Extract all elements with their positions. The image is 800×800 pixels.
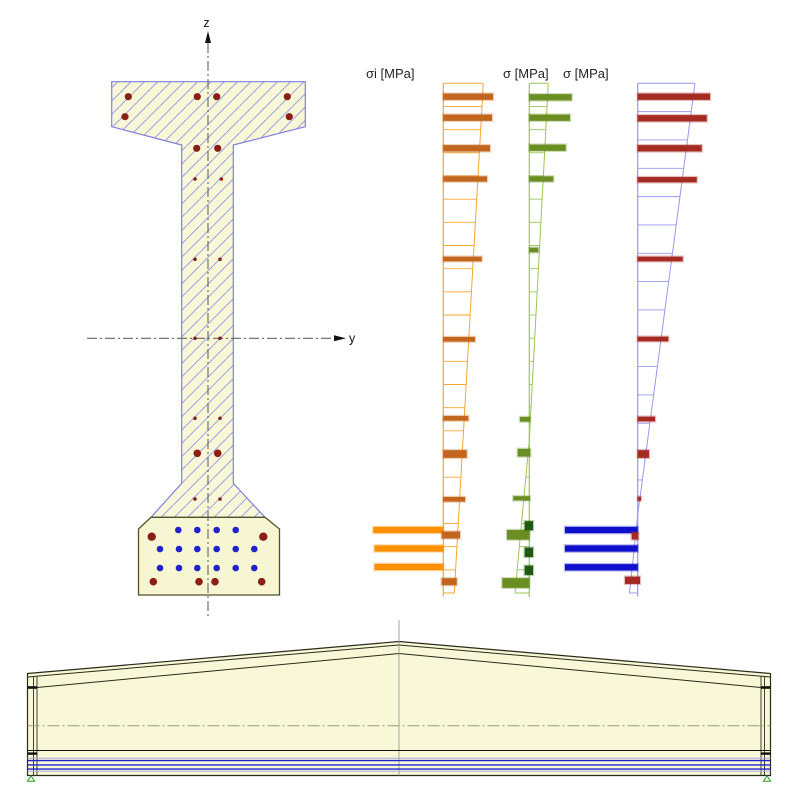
stress-bar bbox=[632, 533, 639, 540]
stress-bar bbox=[638, 94, 710, 100]
stress-bar bbox=[529, 176, 553, 181]
stress-bar bbox=[638, 497, 641, 501]
stress-bar bbox=[565, 545, 638, 551]
support-icon bbox=[763, 776, 770, 782]
stress-bar bbox=[443, 337, 475, 342]
stress-bar bbox=[443, 94, 493, 100]
y-axis-label: y bbox=[349, 332, 356, 346]
stress-bar bbox=[520, 417, 530, 422]
stress-bar bbox=[525, 548, 533, 557]
stress-bar bbox=[518, 449, 531, 457]
stress-bar bbox=[375, 545, 444, 551]
beam-elevation-view bbox=[27, 620, 770, 781]
stress-bar bbox=[525, 521, 533, 530]
stress-diagram-green-label: σ [MPa] bbox=[503, 66, 549, 81]
stress-bar bbox=[529, 248, 538, 253]
stress-diagram-red bbox=[565, 83, 710, 596]
stress-bar bbox=[513, 496, 530, 500]
stress-bar bbox=[443, 497, 465, 502]
stress-bar bbox=[638, 177, 697, 182]
stress-diagram-red-label: σ [MPa] bbox=[563, 66, 609, 81]
z-axis-arrow-icon bbox=[205, 31, 211, 43]
stress-diagrams bbox=[373, 83, 710, 597]
stress-diagram-green bbox=[502, 83, 571, 597]
stress-bar bbox=[529, 115, 570, 121]
stress-bar bbox=[638, 115, 707, 121]
stress-bar bbox=[565, 564, 638, 570]
stress-bar bbox=[375, 564, 444, 570]
stress-bar bbox=[525, 566, 533, 575]
stress-bar bbox=[502, 578, 529, 588]
z-axis-label: z bbox=[203, 16, 209, 30]
support-icon bbox=[27, 776, 34, 782]
stress-bar bbox=[507, 530, 530, 540]
stress-bar bbox=[529, 145, 565, 151]
stress-bar bbox=[443, 145, 490, 151]
y-axis-arrow-icon bbox=[334, 335, 346, 341]
stress-bar bbox=[529, 94, 571, 100]
stress-bar bbox=[443, 176, 487, 181]
stress-bar bbox=[638, 257, 683, 262]
initial-stress-diagram bbox=[373, 83, 493, 596]
stress-bar bbox=[638, 450, 649, 458]
stress-bar bbox=[638, 417, 655, 422]
stress-bar bbox=[442, 532, 460, 539]
stress-diagram-initial-label: σi [MPa] bbox=[366, 66, 414, 81]
cross-section-view bbox=[87, 31, 346, 618]
drawing-canvas: σi [MPa] σ [MPa] σ [MPa] z y bbox=[0, 0, 800, 800]
stress-bar bbox=[638, 145, 702, 151]
stress-bar bbox=[565, 527, 638, 533]
stress-bar bbox=[638, 337, 669, 342]
stress-bar bbox=[443, 416, 468, 421]
stress-bar bbox=[443, 450, 466, 458]
stress-bar bbox=[625, 577, 640, 584]
stress-bar bbox=[442, 578, 457, 585]
stress-bar bbox=[443, 115, 492, 121]
stress-bar bbox=[443, 257, 481, 262]
stress-bar bbox=[373, 527, 443, 533]
